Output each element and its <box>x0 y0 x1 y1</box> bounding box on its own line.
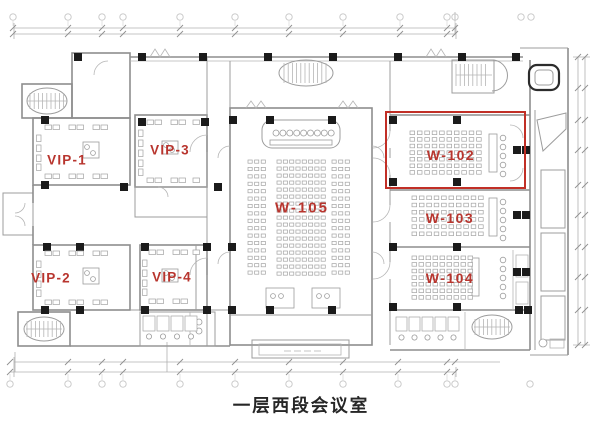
entrance-vestibule <box>3 193 33 235</box>
room-label-vip-2: VIP-2 <box>31 271 71 286</box>
stair-oval-top-middle <box>279 60 333 86</box>
podium-w-103 <box>489 198 497 236</box>
elevator <box>529 65 559 90</box>
room-label-w-105: W-105 <box>275 200 329 217</box>
room-label-w-102: W-102 <box>427 147 475 163</box>
room-label-vip-3: VIP-3 <box>150 143 190 158</box>
room-label-w-104: W-104 <box>426 270 474 286</box>
room-label-w-103: W-103 <box>426 210 474 226</box>
room-label-vip-1: VIP-1 <box>47 153 87 168</box>
floorplan-canvas: VIP-1 VIP-2 VIP-3 VIP-4 W-102 W-103 W-10… <box>0 0 600 429</box>
plan-caption: 一层西段会议室 <box>233 393 370 418</box>
room-label-vip-4: VIP-4 <box>152 270 192 285</box>
